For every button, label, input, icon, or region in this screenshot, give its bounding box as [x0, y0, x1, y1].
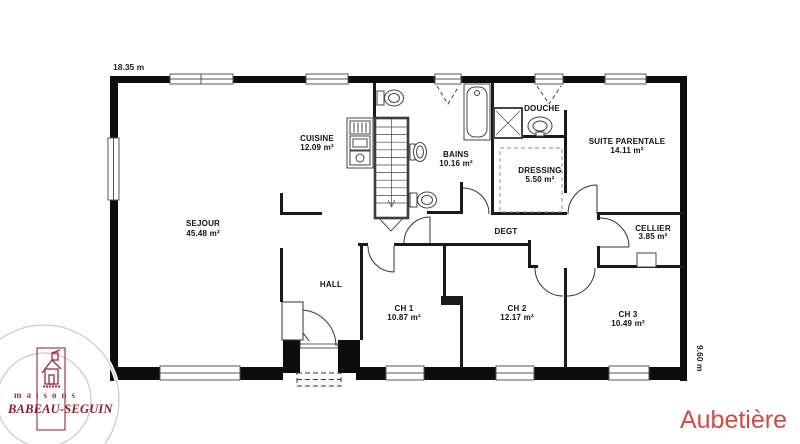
room-area-sejour: 45.48 m²	[186, 229, 220, 238]
room-label-degt: DEGT	[494, 227, 517, 236]
door-arc-bains	[463, 188, 489, 214]
window	[160, 366, 240, 380]
window	[609, 366, 649, 380]
logo-circle-outer	[0, 325, 119, 444]
porch-pier-left	[283, 340, 300, 373]
door-arc-suite	[568, 185, 597, 214]
room-label-ch1: CH 1	[394, 304, 413, 313]
window	[435, 74, 461, 84]
logo-brand-name: BABEAU-SEGUIN	[7, 402, 113, 416]
room-area-suite-parentale: 14.11 m²	[610, 146, 643, 155]
window	[496, 366, 534, 380]
toilet-icon	[410, 192, 437, 208]
room-label-suite-parentale: SUITE PARENTALE	[589, 137, 666, 146]
hall-closet	[282, 302, 303, 340]
room-label-sejour: SEJOUR	[186, 219, 220, 228]
exterior-wall-right	[680, 76, 687, 381]
room-label-douche: DOUCHE	[524, 104, 560, 113]
room-area-ch3: 10.49 m²	[611, 319, 645, 328]
porch-steps	[297, 373, 341, 386]
water-heater-icon	[637, 253, 656, 267]
room-area-ch2: 12.17 m²	[500, 313, 534, 322]
room-label-ch2: CH 2	[507, 304, 526, 313]
door-arc-wc	[404, 217, 430, 243]
door-arc-ch3	[567, 268, 595, 296]
logo: maisons BABEAU-SEGUIN	[0, 325, 119, 444]
room-label-bains: BAINS	[443, 150, 469, 159]
door-arc-ch2	[535, 268, 563, 296]
washbasin-icon	[528, 117, 552, 136]
dim-height-label: 9.60 m	[695, 345, 705, 372]
shower-icon	[494, 108, 522, 138]
door-arc-cellier	[600, 218, 629, 247]
room-area-cellier: 3.85 m²	[639, 232, 668, 241]
dim-width-label: 18.35 m	[113, 62, 145, 72]
window	[535, 74, 563, 84]
entrance-door	[299, 310, 338, 348]
room-label-hall: HALL	[320, 280, 342, 289]
house-icon	[42, 350, 61, 387]
room-area-ch1: 10.87 m²	[387, 313, 421, 322]
window	[170, 74, 233, 84]
window	[605, 74, 646, 84]
room-label-cuisine: CUISINE	[300, 134, 334, 143]
window-opening-marks	[437, 86, 561, 104]
washbasin-icon	[410, 143, 427, 162]
room-label-ch3: CH 3	[618, 310, 637, 319]
room-area-bains: 10.16 m²	[439, 159, 473, 168]
window	[386, 366, 424, 380]
bathtub-icon	[464, 84, 490, 140]
logo-brand-top: maisons	[14, 390, 80, 400]
door-arc-ch1	[368, 246, 394, 272]
porch-pier-right	[338, 340, 360, 373]
plan-title: Aubetière	[680, 406, 787, 434]
room-area-cuisine: 12.09 m²	[300, 143, 334, 152]
room-area-dressing: 5.50 m²	[526, 175, 555, 184]
kitchen-counter-icon	[347, 118, 373, 168]
room-label-dressing: DRESSING	[518, 166, 561, 175]
window	[306, 74, 348, 84]
exterior-wall-left	[110, 76, 118, 381]
window	[108, 138, 119, 200]
floor-plan-page: SEJOUR 45.48 m² CUISINE 12.09 m² BAINS 1…	[0, 0, 800, 444]
floor-plan-svg: SEJOUR 45.48 m² CUISINE 12.09 m² BAINS 1…	[0, 0, 800, 444]
stairs-icon	[375, 118, 408, 218]
logo-circle-outer-mask	[0, 325, 119, 444]
toilet-icon	[377, 90, 404, 106]
doors	[299, 185, 629, 348]
